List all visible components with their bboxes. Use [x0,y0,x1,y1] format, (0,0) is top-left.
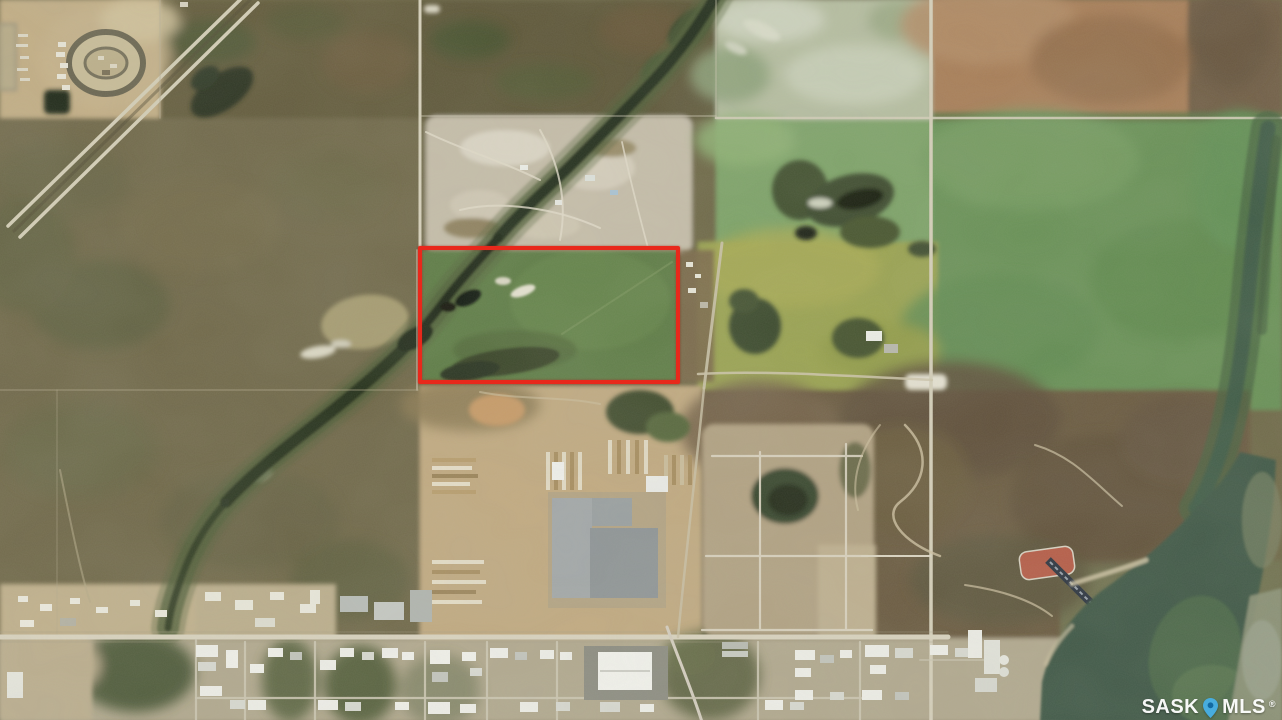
map-pin-icon [1203,698,1218,718]
watermark-sask-text: SASK [1142,696,1200,719]
registered-trademark: ® [1269,699,1276,709]
satellite-image: SASK MLS ® [0,0,1282,720]
property-boundary [418,246,680,384]
watermark: SASK MLS ® [1142,696,1276,719]
watermark-mls-text: MLS [1222,696,1266,719]
